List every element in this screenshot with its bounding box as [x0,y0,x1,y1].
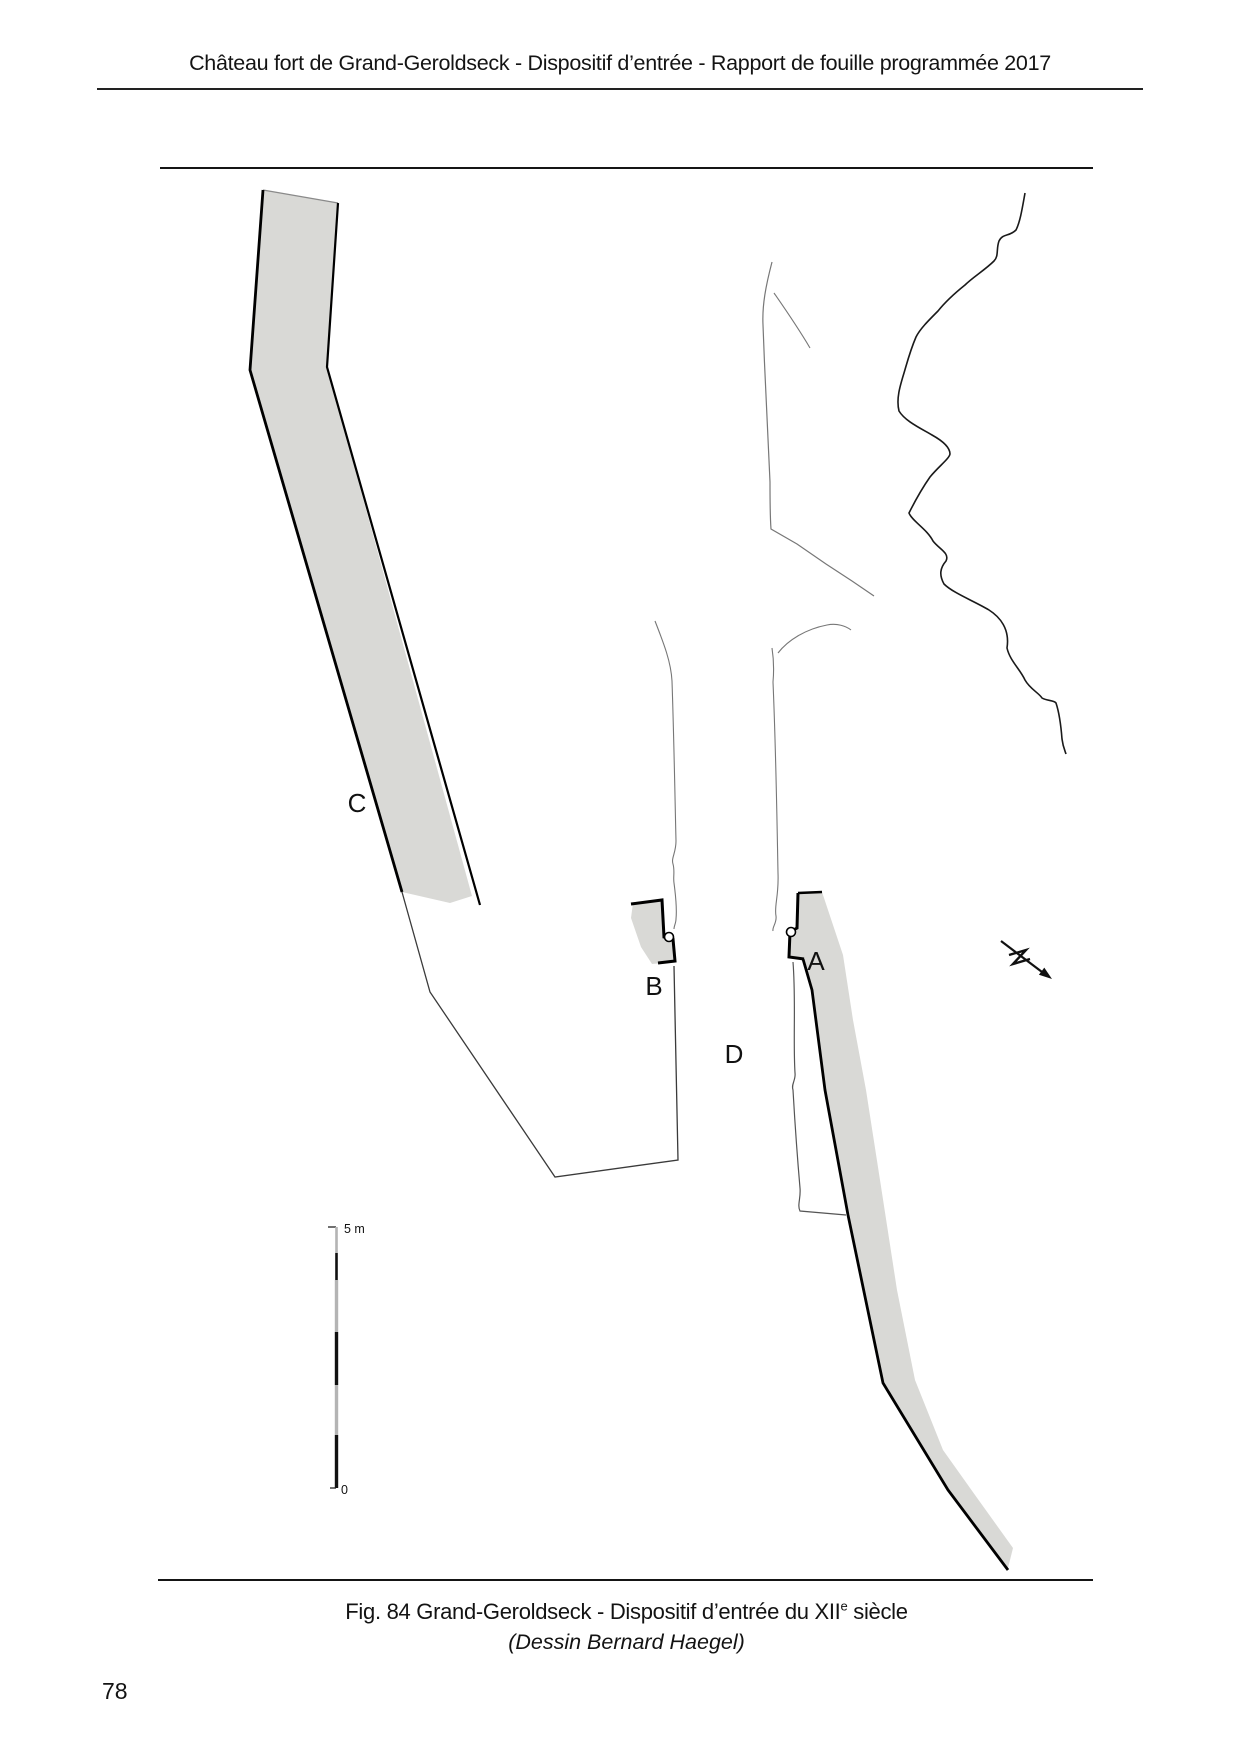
scale-bottom-label: 0 [341,1483,348,1497]
label-a: A [807,946,825,976]
label-d: D [725,1039,744,1069]
path-line-branch [774,293,810,348]
gate-hinge-b [665,933,674,942]
report-page: Château fort de Grand-Geroldseck - Dispo… [0,0,1241,1755]
north-arrow-icon [1001,941,1052,979]
path-line-to-b [655,621,676,929]
wall-b [631,900,675,964]
path-arc-to-a [778,624,851,653]
figure-84-plan: C B A D 5 m 0 [0,0,1241,1755]
wall-a [787,892,1014,1570]
path-line-upper [763,262,874,596]
label-c: C [348,788,367,818]
scale-top-label: 5 m [344,1222,365,1236]
page-number: 78 [102,1678,128,1705]
caption-suffix: siècle [847,1599,907,1624]
courtyard-outline [402,892,678,1177]
path-line-to-a [772,648,778,931]
scale-bar: 5 m 0 [328,1222,365,1497]
contour-line-east [898,193,1066,754]
label-b: B [645,971,662,1001]
figure-caption-credit: (Dessin Bernard Haegel) [160,1628,1093,1656]
caption-text: Fig. 84 Grand-Geroldseck - Dispositif d’… [345,1599,840,1624]
gate-hinge-a [787,928,796,937]
figure-caption: Fig. 84 Grand-Geroldseck - Dispositif d’… [160,1598,1093,1626]
terrain-lines [655,193,1066,931]
